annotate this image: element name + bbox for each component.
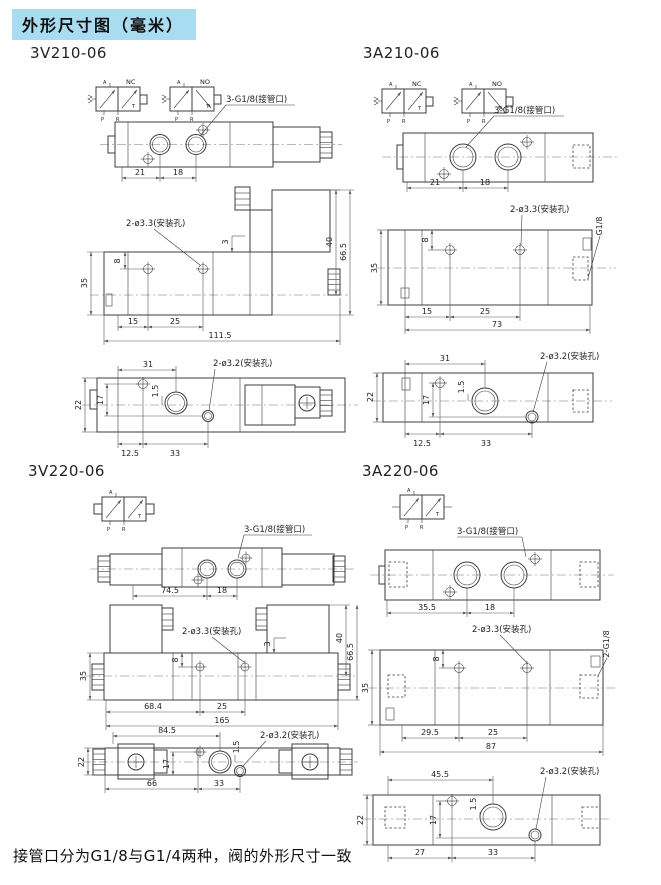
bottom-view: 31 1.5 22 17 12.5 33 2-ø3.2(安装孔) (74, 358, 358, 458)
dim-label: 87 (486, 742, 496, 751)
drawing-3v210-06: A NC T P R A NO T P R (70, 66, 361, 466)
dim-label: 18 (480, 178, 490, 187)
hole-annotation: 2-ø3.3(安装孔) (510, 204, 569, 215)
dim-label: 33 (488, 848, 498, 857)
dim-label: 40 (335, 633, 344, 643)
side-view: 8 35 2-ø3.3(安装孔) 2-G1/8 29.5 25 87 (361, 624, 618, 756)
hole-annotation: 2-ø3.3(安装孔) (182, 626, 241, 637)
top-view: 21 18 3-G1/8(接管口) (382, 105, 620, 192)
hole-annotation: 2-ø3.2(安装孔) (260, 730, 319, 741)
no-label: NO (492, 80, 502, 88)
drawing-3a220-06: A T P R 35.5 18 3-G1/8(接管口) (362, 486, 661, 881)
port-r-label: R (482, 119, 486, 125)
dim-label: 66.5 (346, 643, 355, 661)
dim-label: 12.5 (413, 439, 431, 448)
hole-annotation: 2-ø3.3(安装孔) (126, 218, 185, 229)
dim-label: 29.5 (421, 728, 439, 737)
bottom-view: 84.5 1.5 22 17 66 33 2-ø3.2(安装孔) (77, 726, 358, 793)
dim-label: 33 (481, 439, 491, 448)
dim-label: 22 (77, 757, 86, 767)
dim-label: 33 (214, 779, 224, 788)
port-r-label: R (420, 525, 424, 531)
dim-label: 1.5 (232, 741, 241, 754)
valve-symbol-single: A T P R (392, 488, 452, 531)
port-p-label: P (467, 119, 470, 125)
side-view: 8 35 2-ø3.3(安装孔) G1/8 15 25 73 (370, 204, 616, 334)
dim-label: 40 (325, 237, 334, 247)
dim-label: 73 (492, 320, 502, 329)
dim-label: 21 (135, 168, 145, 177)
dim-label: 35 (80, 278, 89, 288)
page: 外形尺寸图（毫米） 3V210-06 3A210-06 3V220-06 3A2… (0, 0, 661, 885)
port-t-label: T (131, 104, 136, 110)
port-p-label: P (101, 117, 104, 123)
dim-label: 3 (263, 641, 272, 646)
port-annotation: 3-G1/8(接管口) (226, 94, 287, 105)
dim-label: 35 (361, 683, 370, 693)
side-view: 8 3 2-ø3.3(安装孔) 35 40 66.5 68.4 25 165 (79, 605, 360, 730)
dim-label: 27 (415, 848, 425, 857)
valve-symbol-no: A NO T P R (162, 78, 221, 123)
dim-label: 15 (128, 317, 138, 326)
nc-label: NC (412, 80, 422, 88)
dim-label: 35 (79, 671, 88, 681)
dim-label: 31 (143, 360, 153, 369)
valve-symbol-no: A NO T P R (454, 80, 513, 125)
dim-label: 35 (370, 263, 379, 273)
dim-label: 17 (422, 395, 431, 405)
port-r-label: R (402, 119, 406, 125)
dim-label: 17 (96, 395, 105, 405)
port-t-label: T (205, 104, 210, 110)
port-p-label: P (405, 525, 408, 531)
dim-label: 25 (170, 317, 180, 326)
port-annotation: 3-G1/8(接管口) (494, 105, 555, 116)
dim-label: 66 (147, 779, 157, 788)
port-t-label: T (435, 512, 440, 518)
dim-label: 15 (422, 307, 432, 316)
model-title-3v210: 3V210-06 (30, 44, 107, 62)
drawing-3v220-06: A T P R 74.5 18 3-G1/8(接管口) (62, 486, 362, 816)
g18-label: G1/8 (595, 216, 604, 235)
valve-symbol-double: A T P R (94, 490, 154, 533)
port-p-label: P (107, 527, 110, 533)
no-label: NO (200, 78, 210, 86)
nc-label: NC (126, 78, 136, 86)
hole-annotation: 2-ø3.2(安装孔) (540, 351, 599, 362)
port-a-label: A (103, 80, 107, 86)
port-annotation: 3-G1/8(接管口) (244, 524, 305, 535)
port-p-label: P (387, 119, 390, 125)
model-title-3a210: 3A210-06 (363, 44, 440, 62)
dim-label: 18 (485, 603, 495, 612)
screw-hole (203, 411, 214, 422)
port-circle (165, 392, 187, 414)
port-t-label: T (137, 514, 142, 520)
page-header: 外形尺寸图（毫米） (12, 9, 196, 40)
hole-annotation: 2-ø3.2(安装孔) (540, 766, 599, 777)
dim-label: 165 (214, 716, 229, 725)
bottom-view: 45.5 1.5 22 17 27 33 2-ø3.2(安装孔) (356, 766, 612, 862)
dim-label: 22 (356, 815, 365, 825)
port-t-label: T (417, 106, 422, 112)
port-a-label: A (177, 80, 181, 86)
top-view: 21 18 3-G1/8(接管口) (100, 94, 342, 182)
dim-label: 8 (421, 237, 430, 242)
dim-label: 22 (74, 400, 83, 410)
top-view: 35.5 18 3-G1/8(接管口) (370, 526, 614, 617)
hole-annotation: 2-ø3.2(安装孔) (213, 358, 272, 369)
dim-label: 22 (366, 392, 375, 402)
port-circle (480, 804, 506, 830)
dim-label: 1.5 (457, 381, 466, 394)
dim-label: 8 (432, 656, 441, 661)
port-a-label: A (407, 488, 411, 494)
side-view: 2-ø3.3(安装孔) 8 35 3 40 66.5 15 25 111.5 (80, 187, 354, 345)
dim-label: 25 (217, 702, 227, 711)
dim-label: 18 (173, 168, 183, 177)
dim-label: 18 (217, 586, 227, 595)
dim-label: 17 (429, 815, 438, 825)
port-r-label: R (122, 527, 126, 533)
dim-label: 33 (170, 449, 180, 458)
dim-label: 74.5 (161, 586, 179, 595)
port-a-label: A (469, 82, 473, 88)
dim-label: 12.5 (121, 449, 139, 458)
dim-label: 8 (113, 258, 122, 263)
dim-label: 68.4 (144, 702, 162, 711)
valve-symbol-nc: A NC T P R (88, 78, 147, 123)
top-view: 74.5 18 3-G1/8(接管口) (90, 524, 354, 600)
hole-annotation: 2-ø3.3(安装孔) (472, 624, 531, 635)
dim-label: 111.5 (209, 331, 232, 340)
dim-label: 25 (488, 728, 498, 737)
port-annotation: 3-G1/8(接管口) (457, 526, 518, 537)
dim-label: 21 (430, 178, 440, 187)
dim-label: 3 (221, 239, 230, 244)
dim-label: 1.5 (151, 385, 160, 398)
dim-label: 1.5 (469, 798, 478, 811)
dim-label: 8 (171, 657, 180, 662)
dim-label: 84.5 (158, 726, 176, 735)
port-a-label: A (109, 490, 113, 496)
dim-label: 17 (162, 759, 171, 769)
port-a-label: A (389, 82, 393, 88)
dim-label: 25 (480, 307, 490, 316)
dim-label: 66.5 (339, 243, 348, 261)
bottom-view: 31 1.5 22 17 12.5 33 2-ø3.2(安装孔) (366, 351, 612, 448)
valve-symbol-nc: A NC T P R (374, 80, 433, 125)
g18x2-label: 2-G1/8 (602, 630, 611, 657)
dim-label: 31 (440, 354, 450, 363)
dim-label: 45.5 (431, 770, 449, 779)
drawing-3a210-06: A NC T P R A NO T P R (372, 66, 661, 466)
footer-note: 接管口分为G1/8与G1/4两种，阀的外形尺寸一致 (13, 845, 352, 866)
dim-label: 35.5 (418, 603, 436, 612)
